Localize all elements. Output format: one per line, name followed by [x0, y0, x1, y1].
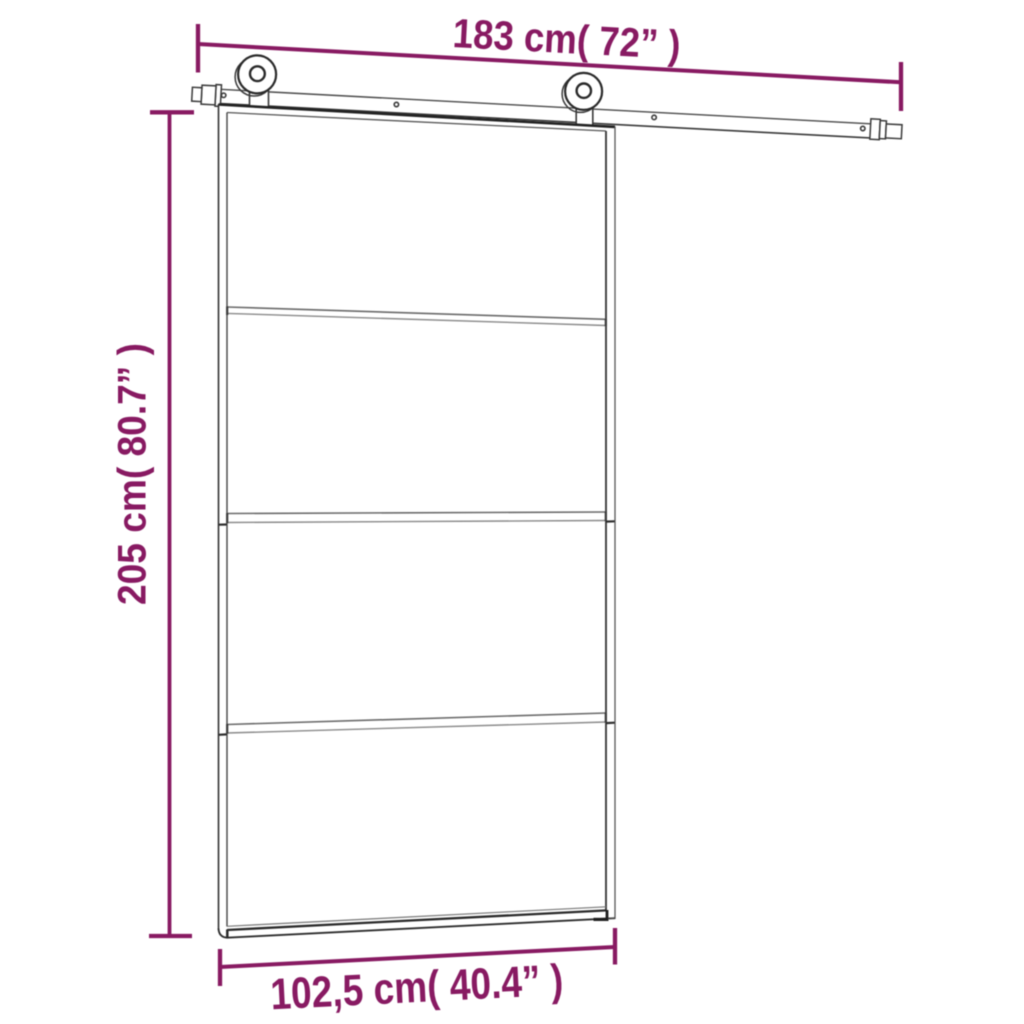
svg-text:205 cm( 80.7” ): 205 cm( 80.7” ) — [111, 343, 155, 605]
